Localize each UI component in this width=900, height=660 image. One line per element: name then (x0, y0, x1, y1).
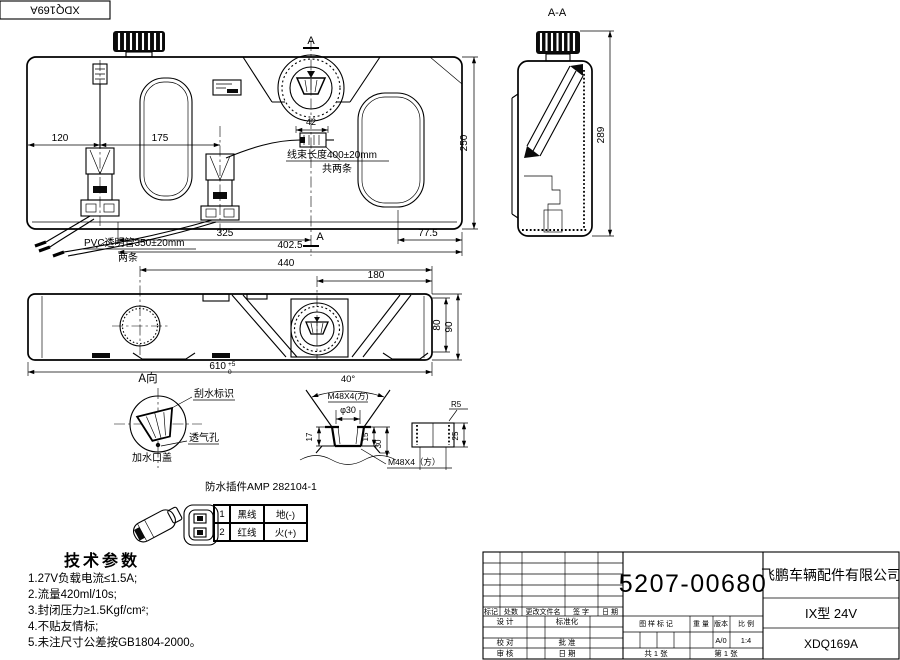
dim-610-tol-dn: 0 (228, 369, 232, 376)
corner-code: XDQ169A (30, 4, 80, 16)
dim-289: 289 (596, 126, 607, 143)
dim-175: 175 (152, 133, 169, 144)
dim-402-5: 402.5 (277, 240, 302, 251)
note-harness-qty: 共两条 (322, 162, 352, 175)
tech-param-2: 2.流量420ml/10s; (28, 587, 117, 603)
pin-1-signal: 地(-) (264, 505, 307, 523)
stamp-version: 版本 (714, 619, 728, 628)
drawing-sheet: XDQ169A (0, 0, 900, 660)
connector-title: 防水插件AMP 282104-1 (205, 480, 317, 493)
dim-17: 17 (305, 432, 314, 441)
label-plate (213, 80, 241, 95)
dim-dia30: φ30 (340, 405, 356, 415)
rev-header-sign: 签 字 (573, 607, 589, 616)
dim-325: 325 (217, 228, 234, 239)
section-mark-a-top: A (307, 35, 315, 47)
tech-param-5: 5.未注尺寸公差按GB1804-2000。 (28, 635, 201, 651)
dim-30: 30 (374, 439, 383, 448)
company-name: 飞鹏车辆配件有限公司 (761, 567, 900, 583)
section-mark-a-bottom: A (316, 231, 324, 243)
model-name: IX型 24V (805, 606, 857, 621)
dim-42: 42 (306, 117, 316, 127)
rev-header-mark: 标记 (484, 607, 498, 616)
label-wiper-mark: 刮水标识 (194, 387, 234, 400)
note-pvc: PVC透明管350±20mm (84, 236, 185, 249)
section-view: A-A 289 (512, 7, 614, 236)
stamp-weight: 重 量 (693, 620, 709, 628)
dim-180: 180 (368, 270, 385, 281)
plan-dimensions: 440 180 80 90 610 +5 0 (28, 258, 462, 376)
dim-120: 120 (52, 133, 69, 144)
sheet-corner-box: XDQ169A (0, 1, 110, 19)
stamp-version-val: A/0 (715, 636, 726, 645)
label-thread: M48X4(方) (327, 391, 368, 401)
pin-2-signal: 火(+) (264, 523, 307, 541)
part-number: 5207-00680 (619, 570, 767, 598)
role-standard: 标准化 (556, 616, 579, 626)
tech-param-4: 4.不贴友情标; (28, 619, 98, 635)
connector-pinout-table: 1 黑线 地(-) 2 红线 火(+) (213, 504, 308, 542)
front-view (27, 31, 462, 256)
role-audit: 审 核 (496, 648, 514, 658)
rev-header-date: 日 期 (602, 608, 618, 616)
thread-detail: 40° M48X4(方) φ30 17 15 30 M48X4（方） (300, 374, 452, 468)
pin-2-num: 2 (214, 523, 230, 541)
dim-25: 25 (451, 431, 460, 440)
pin-1-wire: 黑线 (230, 505, 264, 523)
dim-80: 80 (432, 319, 443, 331)
dim-610-tol-up: +5 (228, 361, 236, 368)
stamp-sheet-no: 第 1 张 (714, 648, 738, 658)
label-filler-cap: 加水口盖 (132, 451, 172, 464)
tech-param-1: 1.27V负载电流≤1.5A; (28, 571, 137, 587)
section-label: A-A (548, 7, 567, 19)
label-thread2: M48X4（方） (388, 457, 440, 467)
rev-header-file: 更改文件名 (526, 607, 561, 616)
role-check: 校 对 (496, 637, 514, 647)
label-vent: 透气孔 (189, 431, 219, 444)
dim-77-5: 77.5 (418, 228, 438, 239)
dim-r5: R5 (451, 400, 462, 409)
connector-3d (130, 504, 184, 545)
dim-610: 610 (209, 361, 226, 372)
stamp-mark: 图 样 标 记 (639, 619, 673, 628)
stamp-scale: 比 例 (738, 619, 754, 628)
role-date: 日 期 (558, 649, 575, 658)
note-harness: 线束长度400±20mm (287, 148, 377, 161)
pin-1-num: 1 (214, 505, 230, 523)
stamp-scale-val: 1:4 (741, 636, 751, 645)
role-design: 设 计 (496, 616, 514, 626)
cap-detail: A向 刮水标识 透气孔 加水口盖 (114, 371, 235, 468)
wiper-icon-detail (137, 408, 178, 443)
tech-params-title: 技术参数 (64, 547, 140, 571)
role-approve: 批 准 (558, 637, 576, 647)
pin-2-wire: 红线 (230, 523, 264, 541)
dim-90: 90 (444, 321, 455, 333)
dim-15: 15 (361, 432, 370, 441)
title-block-text: 5207-00680 飞鹏车辆配件有限公司 IX型 24V XDQ169A 标记… (484, 567, 900, 658)
stamp-sheets: 共 1 张 (644, 649, 668, 658)
tech-param-3: 3.封闭压力≥1.5Kgf/cm²; (28, 603, 149, 619)
cap-detail-title: A向 (138, 371, 157, 385)
ribbed-cap-front (113, 31, 165, 57)
dim-40deg: 40° (341, 374, 356, 385)
dim-440: 440 (278, 258, 295, 269)
drawing-code: XDQ169A (804, 637, 858, 651)
rev-header-count: 处数 (504, 607, 518, 616)
dim-250: 250 (459, 134, 470, 151)
note-pvc-qty: 两条 (118, 251, 138, 264)
